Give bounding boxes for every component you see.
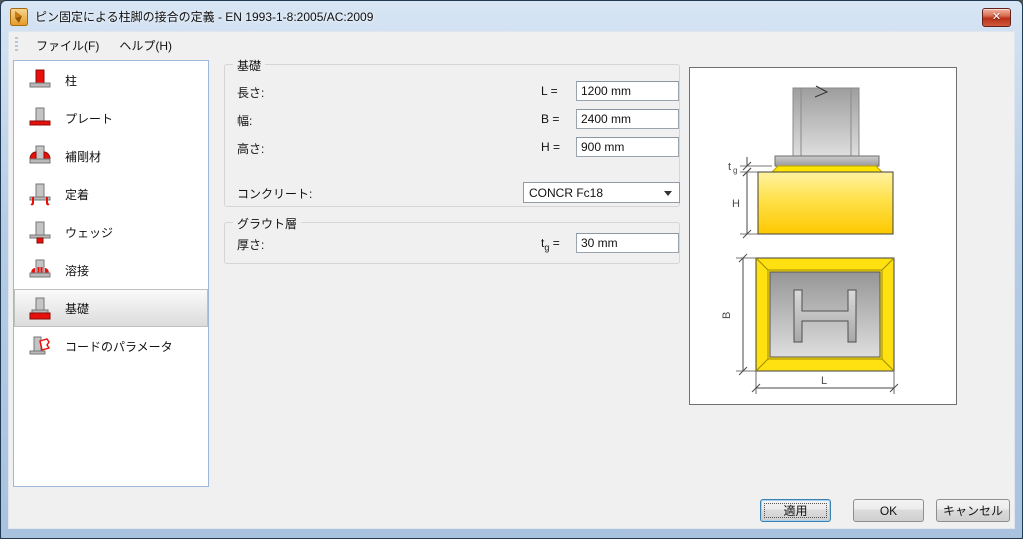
height-label: 高さ: [237,140,264,157]
width-input[interactable] [576,109,679,129]
h-dimension-label: H [732,198,740,210]
weld-icon [27,257,53,283]
group-legend: グラウト層 [233,215,301,232]
sidebar-item-label: コードのパラメータ [65,338,173,355]
wedge-icon [27,219,53,245]
column-icon [27,67,53,93]
thickness-input[interactable] [576,233,679,253]
tg-dimension-label: t [728,161,731,173]
apply-button[interactable]: 適用 [760,499,831,522]
sidebar-item-weld[interactable]: 溶接 [14,251,208,289]
concrete-label: コンクリート: [237,185,312,202]
height-symbol: H = [541,140,575,154]
foundation-icon [27,295,53,321]
tg-dimension-sub: g [733,166,737,175]
code-parameters-icon [27,333,53,359]
cancel-button[interactable]: キャンセル [936,499,1010,522]
sidebar-item-plate[interactable]: プレート [14,99,208,137]
sidebar-item-column[interactable]: 柱 [14,61,208,99]
sidebar-item-wedge[interactable]: ウェッジ [14,213,208,251]
height-input[interactable] [576,137,679,157]
length-symbol: L = [541,84,575,98]
sidebar-item-label: 定着 [65,186,89,203]
sidebar-item-stiffener[interactable]: 補剛材 [14,137,208,175]
menu-item-file[interactable]: ファイル(F) [26,33,109,58]
sidebar-item-label: 基礎 [65,300,89,317]
sidebar-item-label: 補剛材 [65,148,101,165]
sidebar-item-label: 柱 [65,72,77,89]
elevation-view: t g H [728,86,893,238]
tekla-app-icon [10,8,28,26]
base-plate-icon [27,105,53,131]
diagram-panel: t g H [689,67,957,405]
b-dimension-label: B [721,312,733,319]
width-label: 幅: [237,112,252,129]
sidebar: 柱 プレート 補剛材 [13,60,209,487]
concrete-selected-value: CONCR Fc18 [529,186,603,200]
close-button[interactable]: ✕ [982,8,1011,27]
sidebar-item-anchor[interactable]: 定着 [14,175,208,213]
anchor-icon [27,181,53,207]
sidebar-item-label: 溶接 [65,262,89,279]
menu-item-help[interactable]: ヘルプ(H) [109,33,182,58]
width-symbol: B = [541,112,575,126]
window-title: ピン固定による柱脚の接合の定義 - EN 1993-1-8:2005/AC:20… [35,8,373,25]
sidebar-item-label: ウェッジ [65,224,113,241]
sidebar-item-foundation[interactable]: 基礎 [14,289,208,327]
thickness-symbol: tg = [541,236,575,252]
length-label: 長さ: [237,84,264,101]
ok-button[interactable]: OK [853,499,924,522]
menu-bar: ファイル(F) ヘルプ(H) [9,32,1014,58]
concrete-select[interactable]: CONCR Fc18 [523,182,680,203]
client-area: ファイル(F) ヘルプ(H) 柱 プレート [8,31,1015,529]
sidebar-item-code-parameters[interactable]: コードのパラメータ [14,327,208,365]
plan-view: B L [721,254,898,394]
sidebar-item-label: プレート [65,110,113,127]
stiffener-icon [27,143,53,169]
thickness-label: 厚さ: [237,236,264,253]
l-dimension-label: L [821,375,827,387]
focus-rect [764,503,827,518]
dialog-window: ピン固定による柱脚の接合の定義 - EN 1993-1-8:2005/AC:20… [0,0,1023,539]
grout-group: グラウト層 厚さ: tg = [224,222,680,264]
close-x-icon: ✕ [992,12,1001,23]
chevron-down-icon [664,191,672,196]
group-legend: 基礎 [233,57,265,74]
title-bar[interactable]: ピン固定による柱脚の接合の定義 - EN 1993-1-8:2005/AC:20… [1,1,1022,31]
menu-grip-handle [15,37,18,53]
column-base-diagram: t g H [690,68,956,404]
length-input[interactable] [576,81,679,101]
foundation-group: 基礎 長さ: L = 幅: B = 高さ: H = コンクリート: CONCR … [224,64,680,207]
